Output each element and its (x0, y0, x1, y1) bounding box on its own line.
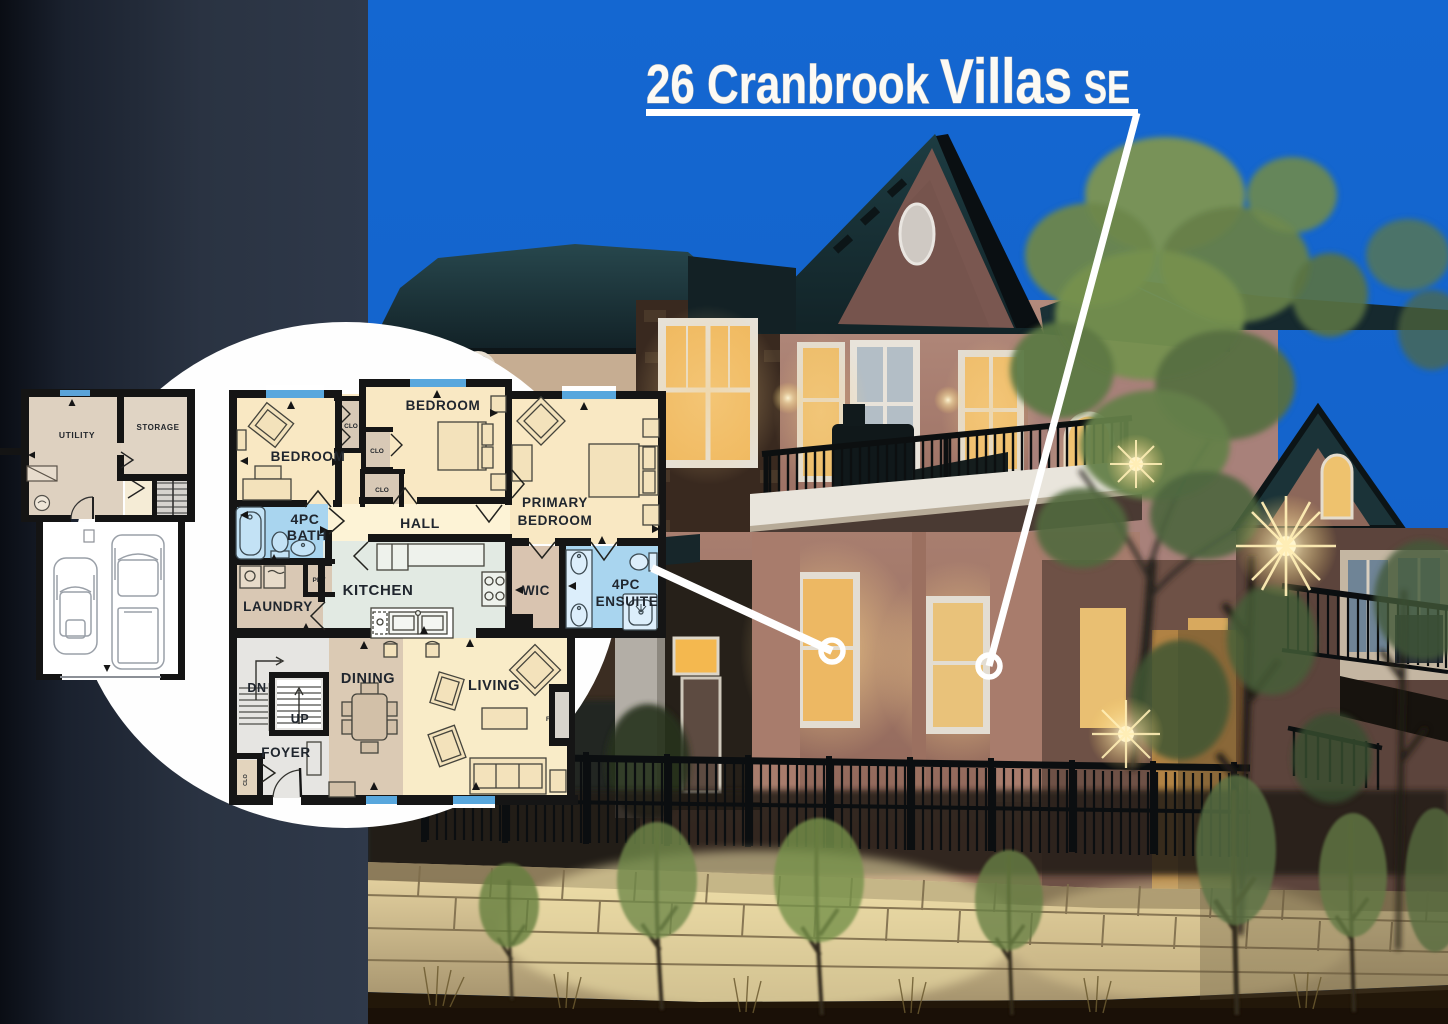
svg-text:SE: SE (1084, 61, 1130, 113)
svg-text:UP: UP (291, 712, 310, 726)
svg-text:4PC: 4PC (290, 511, 319, 527)
svg-text:HALL: HALL (400, 515, 440, 531)
svg-text:WIC: WIC (522, 583, 550, 598)
svg-text:26 Cranbrook: 26 Cranbrook (646, 53, 929, 115)
svg-text:CLO: CLO (243, 773, 249, 785)
svg-text:FOYER: FOYER (261, 745, 311, 760)
svg-text:LAUNDRY: LAUNDRY (243, 599, 313, 614)
svg-text:BEDROOM: BEDROOM (406, 398, 481, 413)
svg-text:BEDROOM: BEDROOM (271, 449, 346, 464)
svg-text:CLO: CLO (375, 487, 389, 494)
svg-text:UTILITY: UTILITY (59, 430, 95, 440)
svg-text:CLO: CLO (344, 423, 358, 430)
svg-text:DINING: DINING (341, 671, 395, 687)
svg-text:ENSUITE: ENSUITE (596, 594, 659, 609)
svg-text:BEDROOM: BEDROOM (518, 513, 593, 528)
svg-text:Villas: Villas (940, 47, 1072, 117)
svg-text:BATH: BATH (287, 527, 327, 543)
svg-text:STORAGE: STORAGE (137, 423, 180, 432)
svg-text:CLO: CLO (370, 448, 384, 455)
svg-text:4PC: 4PC (612, 577, 640, 592)
svg-text:KITCHEN: KITCHEN (343, 582, 414, 599)
svg-text:F: F (546, 717, 550, 723)
svg-text:LIVING: LIVING (468, 678, 520, 694)
svg-text:PRIMARY: PRIMARY (522, 495, 588, 510)
svg-text:DN: DN (247, 681, 266, 695)
